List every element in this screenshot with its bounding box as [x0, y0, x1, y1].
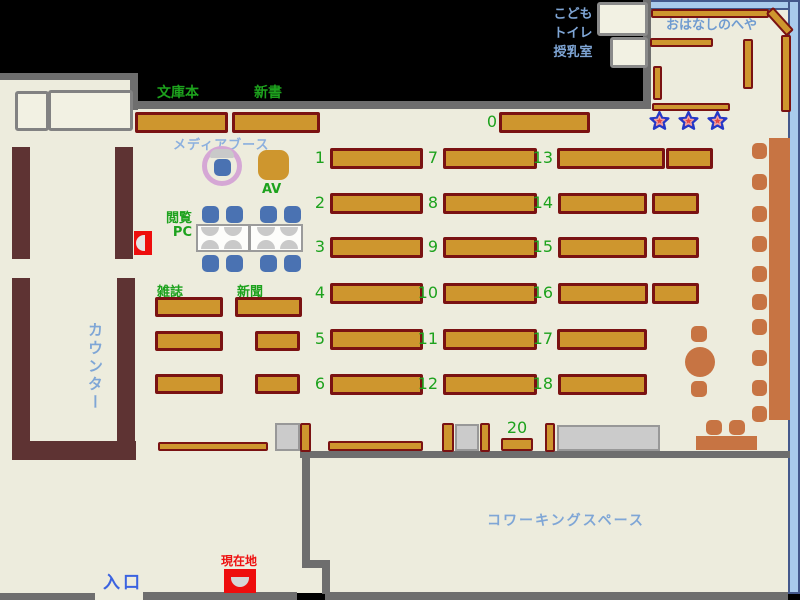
wall [0, 73, 138, 80]
bookshelf [557, 329, 647, 350]
bookshelf [443, 237, 537, 258]
stool [752, 266, 767, 282]
chair [226, 255, 243, 272]
av-label: AV [262, 182, 281, 197]
shelf-number: 18 [527, 375, 553, 393]
star-icon [677, 110, 700, 133]
stool [691, 326, 707, 342]
stool [729, 420, 745, 435]
shelf-number: 13 [527, 149, 553, 167]
bookshelf [480, 423, 490, 452]
stool [706, 420, 722, 435]
shelf-number: 3 [299, 238, 325, 256]
shelf-number: 14 [527, 194, 553, 212]
chair [226, 206, 243, 223]
equipment-box [275, 423, 300, 451]
chair [260, 206, 277, 223]
shelf-number: 16 [527, 284, 553, 302]
equipment-box [557, 425, 660, 451]
shelf-number: 5 [299, 330, 325, 348]
counter-wall [12, 278, 30, 460]
bookshelf [443, 193, 537, 214]
counter-wall [12, 147, 30, 259]
shelf-number: 12 [412, 375, 438, 393]
magazine-shelf [155, 297, 223, 317]
entrance-gap-floor [95, 593, 143, 600]
stool [752, 319, 767, 335]
story-room-shelf [743, 39, 753, 89]
wall [130, 101, 650, 109]
bottom-wall-middle [143, 592, 297, 600]
shelf-number: 7 [412, 149, 438, 167]
av-table [258, 150, 289, 180]
bookshelf [501, 438, 533, 451]
newspaper-shelf [255, 331, 300, 351]
coworking-label: コワーキングスペース [487, 510, 645, 530]
bookshelf [330, 374, 423, 395]
bookshelf [232, 112, 320, 133]
chair [202, 255, 219, 272]
study-desk [769, 138, 790, 420]
return-slot-icon [136, 235, 145, 251]
chair [202, 206, 219, 223]
coworking-top-wall [300, 451, 790, 458]
nursing-room [610, 37, 648, 68]
newspaper-shelf [235, 297, 302, 317]
bookshelf [330, 283, 423, 304]
pc-label-line2: PC [160, 226, 192, 240]
pc-label-line1: 閲覧 [160, 212, 192, 226]
bookshelf [135, 112, 228, 133]
shelf-number: 17 [527, 330, 553, 348]
bench [696, 436, 757, 450]
equipment-box [455, 424, 479, 451]
shelf-number: 1 [299, 149, 325, 167]
kids-area-label: こども トイレ 授乳室 [549, 5, 597, 62]
shelf-number: 20 [504, 419, 530, 437]
bookshelf [443, 374, 537, 395]
shelf-number: 6 [299, 375, 325, 393]
bookshelf [443, 283, 537, 304]
stool [752, 294, 767, 310]
service-desk [48, 90, 133, 131]
stool [752, 350, 767, 366]
counter-wall [12, 441, 136, 460]
wall [322, 565, 330, 594]
bookshelf [330, 193, 423, 214]
shelf-number: 11 [412, 330, 438, 348]
bookshelf [443, 148, 537, 169]
toilet-room [597, 2, 648, 36]
bookshelf [666, 148, 713, 169]
bookshelf [330, 237, 423, 258]
bookshelf [330, 148, 423, 169]
story-room-shelf [781, 35, 791, 112]
bunkobon-label: 文庫本 [157, 82, 199, 102]
bookshelf [558, 193, 647, 214]
bookshelf [558, 283, 648, 304]
bookshelf [330, 329, 423, 350]
bookshelf [442, 423, 454, 452]
story-room-shelf [651, 9, 769, 18]
story-room-shelf [650, 38, 713, 47]
bookshelf [557, 148, 665, 169]
bookshelf [300, 423, 311, 452]
magazine-shelf [155, 331, 223, 351]
stool [691, 381, 707, 397]
bookshelf [558, 374, 647, 395]
stool [752, 174, 767, 190]
counter-wall [117, 278, 135, 441]
entrance-label: 入口 [103, 568, 143, 593]
bookshelf [545, 423, 555, 452]
shelf-number: 15 [527, 238, 553, 256]
stool [752, 236, 767, 252]
bottom-wall-left [0, 593, 95, 600]
bookshelf [499, 112, 590, 133]
chair [284, 255, 301, 272]
bookshelf [652, 283, 699, 304]
shinsho-label: 新書 [254, 82, 282, 102]
round-table [685, 347, 715, 377]
pc-label: 閲覧 PC [160, 212, 192, 240]
shelf-number: 9 [412, 238, 438, 256]
shelf-number: 2 [299, 194, 325, 212]
stool [752, 206, 767, 222]
kids-area-line2: トイレ [549, 24, 597, 43]
bookshelf [652, 193, 699, 214]
story-room-shelf [653, 66, 662, 100]
chair [260, 255, 277, 272]
shelf-number: 4 [299, 284, 325, 302]
star-icon [706, 110, 729, 133]
kids-area-line1: こども [549, 5, 597, 24]
shelf-number: 0 [471, 113, 497, 131]
service-desk [15, 91, 49, 131]
magazine-shelf [155, 374, 223, 394]
stool [752, 406, 767, 422]
shelf-number: 8 [412, 194, 438, 212]
bookshelf [558, 237, 647, 258]
library-floor-map: こども トイレ 授乳室 おはなしのへや 文庫本 新書 メディアブース AV 閲覧… [0, 0, 800, 600]
low-shelf [158, 442, 268, 451]
stool [752, 380, 767, 396]
coworking-left-wall [302, 451, 310, 567]
kids-area-line3: 授乳室 [549, 43, 597, 62]
shelf-number: 10 [412, 284, 438, 302]
bookshelf [443, 329, 537, 350]
bookshelf [652, 237, 699, 258]
current-location-label: 現在地 [221, 552, 257, 569]
media-booth-seat [214, 159, 231, 176]
counter-label: カウンター [85, 322, 106, 412]
stool [752, 143, 767, 159]
star-icon [648, 110, 671, 133]
bottom-wall-right [325, 592, 788, 600]
low-shelf [328, 441, 423, 451]
media-booth-headrest [210, 149, 234, 158]
counter-wall [115, 147, 133, 259]
newspaper-shelf [255, 374, 300, 394]
